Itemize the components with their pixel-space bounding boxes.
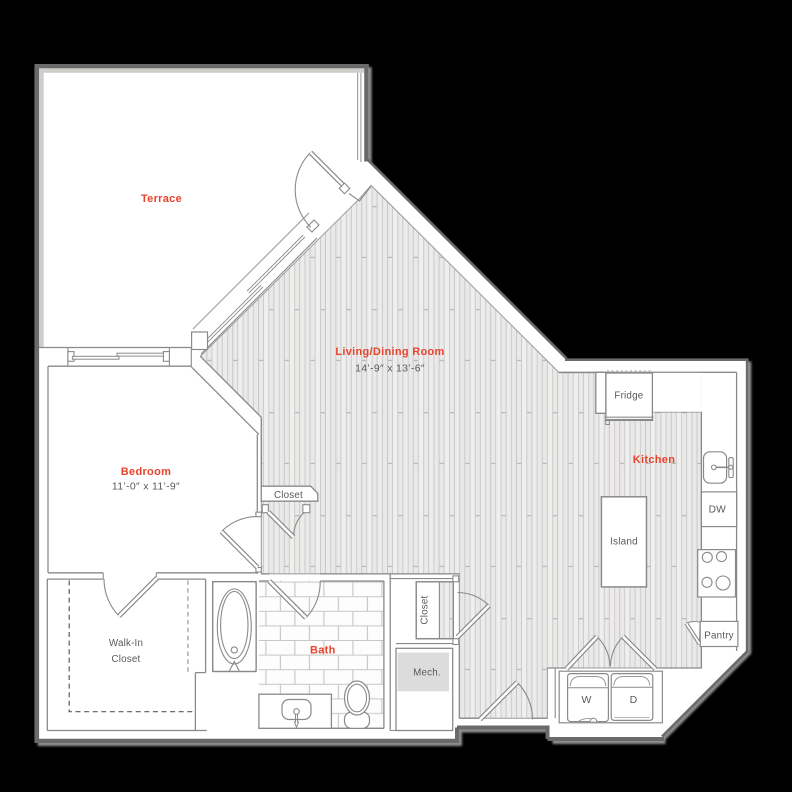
- svg-text:11’-0″ x 11’-9″: 11’-0″ x 11’-9″: [112, 481, 180, 493]
- svg-text:Island: Island: [610, 537, 638, 548]
- svg-text:Pantry: Pantry: [704, 631, 734, 642]
- svg-text:Closet: Closet: [112, 654, 141, 665]
- svg-text:DW: DW: [709, 505, 727, 516]
- svg-text:Closet: Closet: [274, 490, 303, 501]
- svg-text:Bath: Bath: [310, 645, 336, 657]
- svg-text:Closet: Closet: [420, 595, 431, 624]
- svg-text:Kitchen: Kitchen: [633, 454, 675, 466]
- svg-text:Mech.: Mech.: [413, 668, 441, 679]
- svg-text:W: W: [581, 694, 591, 706]
- svg-text:Terrace: Terrace: [141, 193, 182, 205]
- svg-text:14’-9″ x 13’-6″: 14’-9″ x 13’-6″: [355, 363, 425, 375]
- svg-text:Walk-In: Walk-In: [109, 638, 143, 649]
- svg-text:D: D: [630, 694, 638, 706]
- svg-text:Living/Dining Room: Living/Dining Room: [335, 346, 444, 358]
- svg-text:Fridge: Fridge: [614, 391, 643, 402]
- svg-text:Bedroom: Bedroom: [121, 466, 171, 478]
